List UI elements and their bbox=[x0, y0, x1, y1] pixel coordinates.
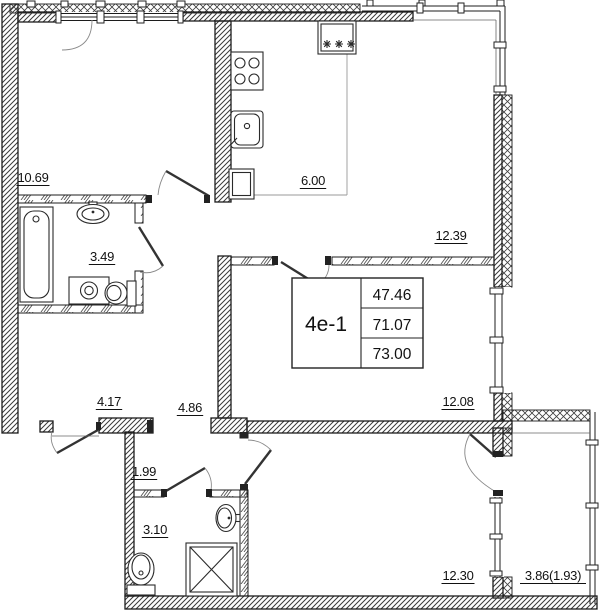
room-area-label-bedroom-bottom: 12.30 bbox=[442, 568, 473, 583]
room-area-label-bedroom-middle: 12.08 bbox=[442, 394, 473, 409]
bathtub bbox=[20, 207, 53, 302]
washing-machine bbox=[69, 277, 109, 304]
stove bbox=[231, 52, 263, 90]
wall-balcony-door-bottom bbox=[493, 577, 503, 598]
wall-exterior-right-lower bbox=[494, 393, 502, 421]
kitchen-sink bbox=[231, 111, 264, 148]
room-area-label-bathroom-second: 3.10 bbox=[143, 522, 167, 537]
toilet-bathroom-main bbox=[105, 281, 136, 306]
ventilation-shaft bbox=[318, 21, 356, 54]
shower-cabin bbox=[186, 543, 237, 596]
unit-info-table: 4е-1 47.46 71.07 73.00 bbox=[292, 278, 423, 368]
wall-exterior-bottom bbox=[125, 596, 597, 609]
wall-corridor-living bbox=[218, 256, 231, 418]
unit-living-area: 47.46 bbox=[373, 287, 412, 304]
wall-exterior-left bbox=[2, 4, 18, 433]
room-area-label-corridor-center: 4.86 bbox=[178, 400, 202, 415]
wall-exterior-top-b bbox=[183, 12, 413, 21]
wall-entrance-right bbox=[99, 418, 153, 433]
room-area-label-hallway-left: 4.17 bbox=[97, 394, 121, 409]
unit-total-area: 73.00 bbox=[373, 346, 412, 363]
wall-corner-center bbox=[211, 418, 247, 433]
room-area-label-living-dining-zone: 12.39 bbox=[435, 228, 466, 243]
wall-exterior-right-upper bbox=[494, 95, 502, 287]
kitchen-cabinet bbox=[229, 169, 254, 199]
floor-plan-svg: 4е-1 47.46 71.07 73.00 10.693.494.174.86… bbox=[0, 0, 600, 614]
room-area-label-hall-small: 1.99 bbox=[132, 464, 156, 479]
room-area-label-bathroom-main: 3.49 bbox=[90, 249, 114, 264]
room-area-label-kitchen-zone: 6.00 bbox=[301, 173, 325, 188]
wall-bedroom-top bbox=[247, 421, 512, 433]
room-area-label-bedroom-top-left: 10.69 bbox=[17, 170, 48, 185]
room-area-label-balcony: 3.86(1.93) bbox=[525, 568, 581, 583]
floor-plan-page: 4е-1 47.46 71.07 73.00 10.693.494.174.86… bbox=[0, 0, 600, 614]
unit-type-label: 4е-1 bbox=[305, 313, 347, 336]
wall-entrance-jamb bbox=[40, 421, 53, 432]
wall-exterior-top-a bbox=[18, 12, 58, 22]
unit-area-excl-balcony: 71.07 bbox=[373, 317, 412, 334]
toilet-bathroom-second bbox=[127, 553, 155, 595]
